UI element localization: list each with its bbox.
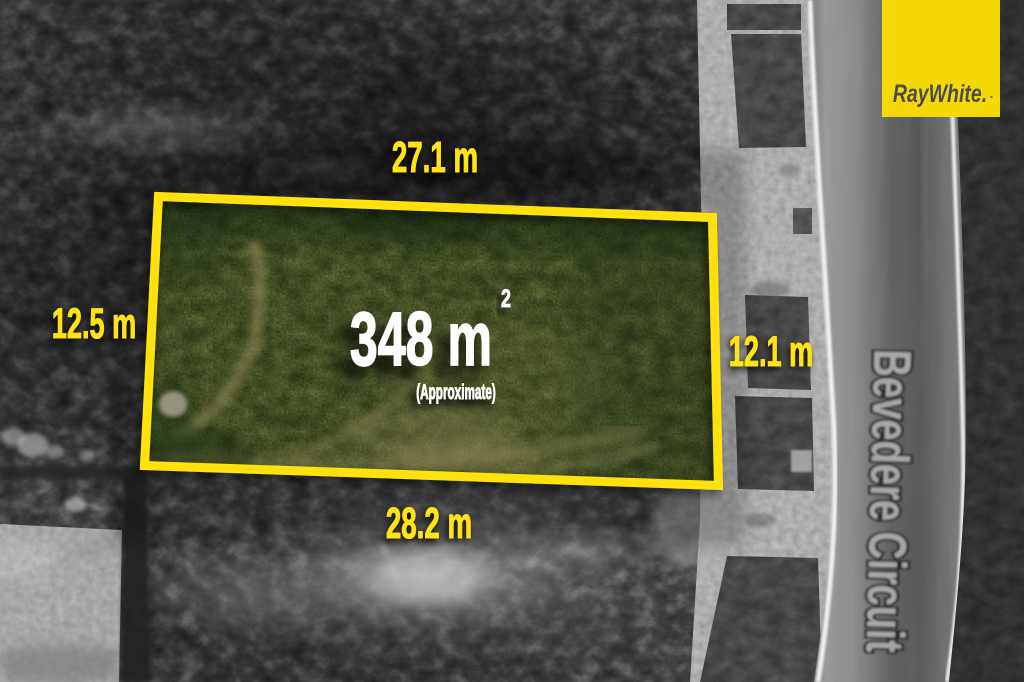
- svg-text:Bevedere Circuit: Bevedere Circuit: [855, 349, 923, 654]
- svg-text:12.1 m: 12.1 m: [729, 327, 813, 376]
- svg-text:12.5 m: 12.5 m: [52, 299, 136, 348]
- svg-text:27.1 m: 27.1 m: [392, 133, 478, 182]
- svg-text:(Approximate): (Approximate): [416, 380, 496, 403]
- svg-text:348 m: 348 m: [350, 297, 492, 382]
- svg-text:28.2 m: 28.2 m: [386, 499, 472, 548]
- svg-text:2: 2: [501, 284, 511, 313]
- svg-text:RayWhite.: RayWhite.: [893, 80, 987, 108]
